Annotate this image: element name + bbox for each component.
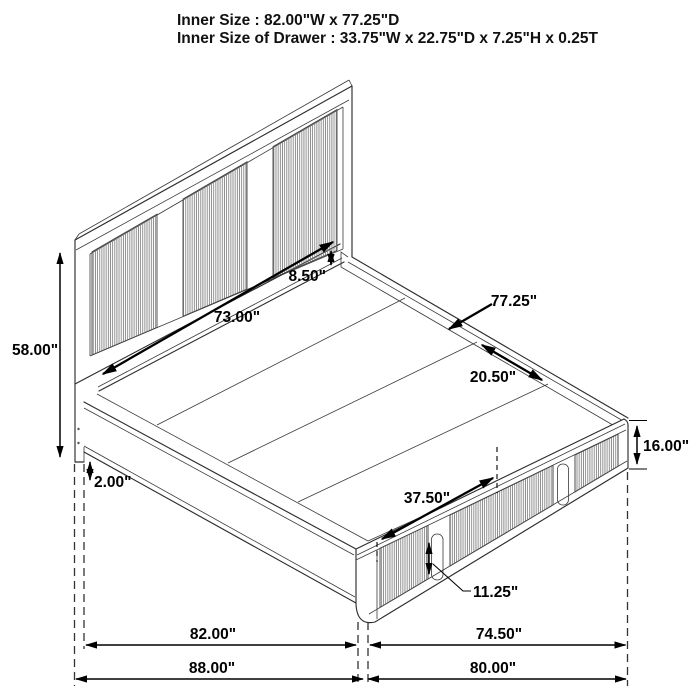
headboard-slat-panel xyxy=(183,162,247,316)
dim-label-drawer-module: 37.50" xyxy=(404,490,450,507)
dim-footboard-span: 74.50" xyxy=(370,626,626,645)
dim-label-footboard-height: 16.00" xyxy=(643,438,689,455)
dim-overall-depth: 80.00" xyxy=(368,660,626,679)
dim-inner-width: 82.00" xyxy=(86,626,356,645)
dim-deck-panel: 20.50" xyxy=(470,345,542,386)
dim-label-rail-clearance: 2.00" xyxy=(94,474,132,491)
headboard-slat-panel xyxy=(273,110,337,278)
dim-label-headboard-gap: 8.50" xyxy=(288,268,326,285)
title: Inner Size : 82.00"W x 77.25"D Inner Siz… xyxy=(177,12,598,47)
hardware-hole xyxy=(77,428,79,430)
dim-label-inner-width: 82.00" xyxy=(190,626,236,643)
right-rail-end-cap xyxy=(341,252,348,267)
dim-label-drawer-front: 11.25" xyxy=(473,584,518,601)
bed-dimension-diagram: Inner Size : 82.00"W x 77.25"D Inner Siz… xyxy=(0,0,700,700)
title-line-2: Inner Size of Drawer : 33.75"W x 22.75"D… xyxy=(177,30,598,47)
dim-label-inner-depth: 77.25" xyxy=(491,293,537,310)
dim-label-overall-width: 88.00" xyxy=(189,660,235,677)
dim-footboard-height: 16.00" xyxy=(629,421,689,470)
right-rail-outer-edge xyxy=(352,257,628,418)
dim-headboard-height: 58.00" xyxy=(12,253,60,457)
dim-label-overall-depth: 80.00" xyxy=(470,660,516,677)
hardware-hole xyxy=(77,442,79,444)
title-line-1: Inner Size : 82.00"W x 77.25"D xyxy=(177,12,399,29)
dim-label-headboard-width: 73.00" xyxy=(214,309,260,326)
deck-seam xyxy=(157,298,405,425)
side-rail xyxy=(84,408,356,603)
headboard-slat-panel xyxy=(92,214,157,355)
dim-label-headboard-height: 58.00" xyxy=(12,342,58,359)
dim-label-footboard-span: 74.50" xyxy=(476,626,522,643)
dim-overall-width: 88.00" xyxy=(76,660,363,679)
dim-inner-depth: 77.25" xyxy=(449,293,537,329)
dim-label-deck-panel: 20.50" xyxy=(470,369,516,386)
deck-seam xyxy=(228,342,477,463)
diagram-canvas: Inner Size : 82.00"W x 77.25"D Inner Siz… xyxy=(0,0,700,700)
